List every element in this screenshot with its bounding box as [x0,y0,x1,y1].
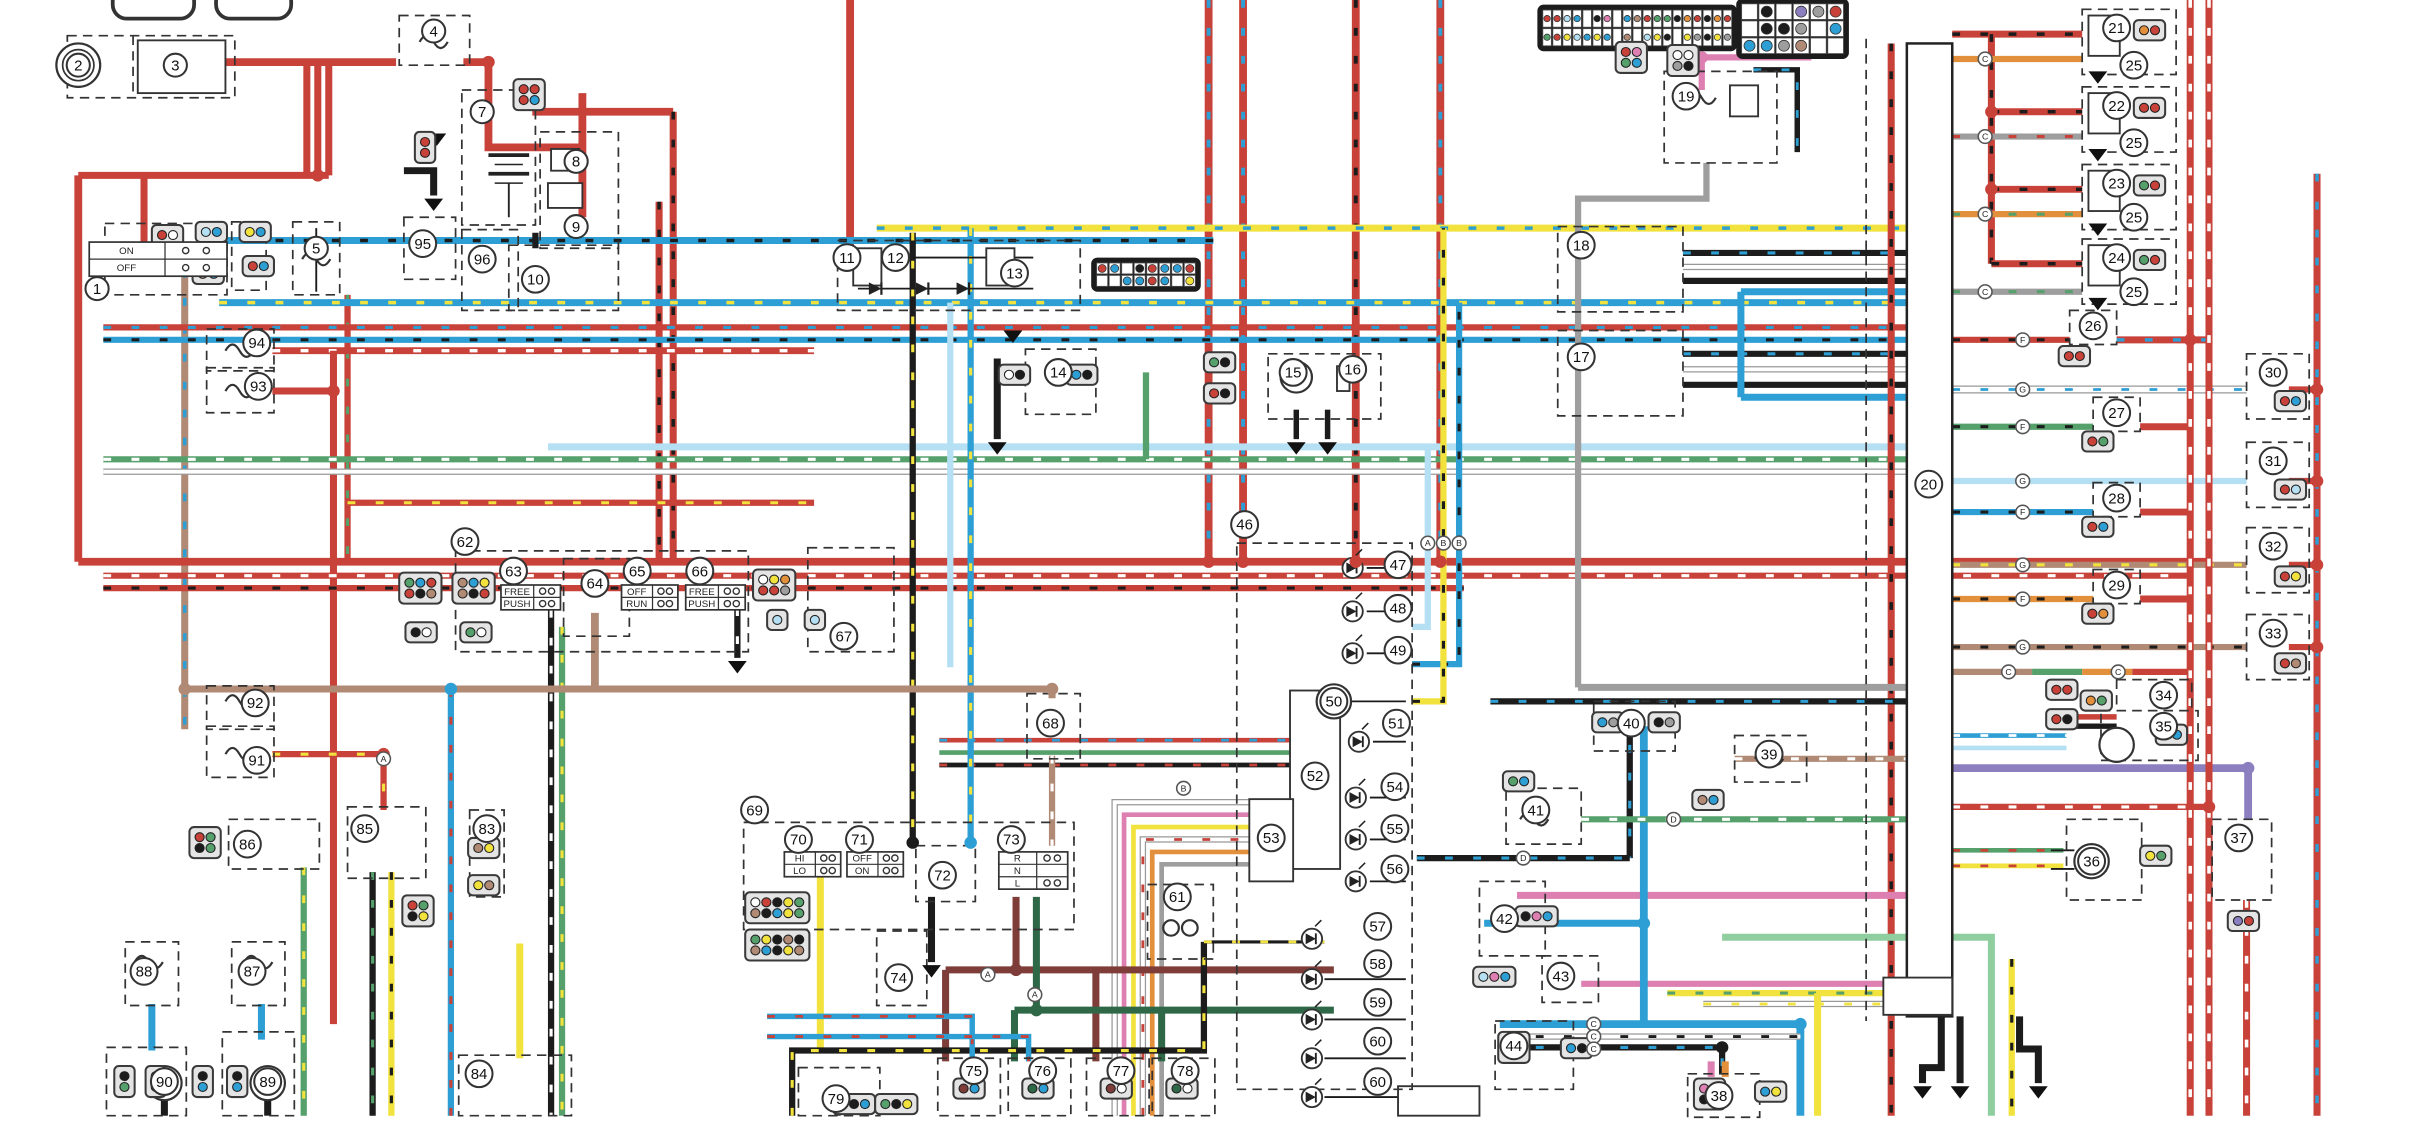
switch-label: FREE [504,587,530,598]
connector [243,256,274,276]
connector-pin [2280,397,2289,406]
component-label: 24 [2108,250,2125,267]
component-label: 16 [1344,362,1361,379]
switch-label: RUN [626,599,647,610]
connector-pin [881,1100,890,1109]
wire-marker-letter: C [1982,209,1988,219]
connector-pin [519,85,528,94]
connector-pin [1684,61,1693,70]
connector [514,79,545,110]
component-label: 67 [835,629,852,646]
junction-dot [1237,556,1250,568]
pin [1594,34,1600,40]
component-label: 84 [471,1066,488,1083]
component-label: 48 [1390,601,1407,618]
connector-pin [1083,370,1092,379]
connector-pin [206,844,215,853]
pin-cell [1097,275,1108,286]
connector-pin [466,628,475,637]
connector-pin [2139,103,2148,112]
connector [999,365,1030,385]
wire-marker-letter: F [2020,422,2025,432]
connector-pin [773,935,782,944]
connector [2134,250,2165,270]
component-label: 44 [1506,1038,1523,1055]
connector-pin [416,589,425,598]
component-label: 60 [1369,1034,1386,1051]
component-label: 62 [457,534,474,551]
junction-dot [2311,641,2324,653]
connector-pin [198,1082,207,1091]
pin [1564,34,1570,40]
connector-pin [195,844,204,853]
wire-marker-letter: D [1670,814,1676,824]
connector-pin [784,935,793,944]
connector-pin [1210,358,1219,367]
connector-pin [2291,485,2300,494]
switch-label: OFF [627,587,646,598]
pin-cell [1583,10,1591,27]
pin [1554,34,1560,40]
pin [1574,15,1580,21]
connector-pin [2088,522,2097,531]
connector-pin [427,589,436,598]
pin [1624,34,1630,40]
junction-dot [2242,762,2255,774]
switch-label: PUSH [688,599,715,610]
wire-marker-letter: C [2005,667,2011,677]
connector-pin [860,1100,869,1109]
pin [1654,34,1660,40]
connector-pin [1072,370,1081,379]
pin [1724,34,1730,40]
pin [1644,34,1650,40]
connector-pin [770,586,779,595]
switch-label: LO [793,866,806,877]
connector-pin [1221,358,1230,367]
component-label: 2 [74,58,82,75]
component-label: 95 [414,236,431,253]
component-label: 3 [171,58,179,75]
connector-pin [2075,352,2084,361]
connector-pin [1665,718,1674,727]
connector [2275,653,2306,673]
connector-pin [198,1072,207,1081]
connector-pin [2233,916,2242,925]
connector-pin [1543,912,1552,921]
component-label: 79 [828,1091,845,1108]
pin [1761,23,1772,34]
wire-marker-letter: A [985,970,991,980]
wire-marker-letter: A [1032,990,1038,1000]
connector [745,892,809,923]
component-label: 42 [1496,911,1513,928]
pin [1813,6,1824,17]
connector-pin [2139,26,2148,35]
wire-marker-letter: C [1982,287,1988,297]
wire-marker-letter: B [1441,538,1447,548]
connector-pin [751,946,760,955]
component-label: 36 [2083,854,2100,871]
pin-cell [1673,29,1681,46]
connector-pin [2291,659,2300,668]
connector [2275,479,2306,499]
pin [1624,15,1630,21]
component-label: 96 [474,251,491,268]
connector [399,573,441,604]
connector-pin [1709,795,1718,804]
connector [745,929,809,960]
component-label: 33 [2265,625,2282,642]
connector-pin [1028,1084,1037,1093]
connector [196,222,227,242]
component-label: 25 [2125,58,2142,75]
connector-pin [519,96,528,105]
pin [1674,15,1680,21]
connector [1616,42,1647,73]
wire-marker-letter: G [2019,476,2026,486]
connector-pin [751,898,760,907]
pin [1111,264,1119,272]
connector-pin [892,1100,901,1109]
wire-marker-letter: D [1520,853,1526,863]
connector-pin [2146,851,2155,860]
switch-label: ON [855,866,870,877]
component-label: 30 [2265,365,2282,382]
component-label: 29 [2108,577,2125,594]
component-label: 75 [965,1063,982,1080]
connector-pin [784,946,793,955]
component-label: 13 [1006,265,1023,282]
junction-dot [906,836,919,848]
connector-pin [795,909,804,918]
connector [1755,1082,1786,1102]
connector-pin [458,589,467,598]
connector [2082,604,2113,624]
connector [2059,346,2090,366]
wire-marker-letter: C [1591,1044,1597,1054]
connector-pin [1501,972,1510,981]
connector-pin [762,935,771,944]
connector-pin [849,1100,858,1109]
component-label: 5 [312,241,320,258]
component-label: 69 [746,802,763,819]
component-label: 37 [2230,830,2247,847]
wire-marker-letter: F [2020,335,2025,345]
connector-pin [2099,522,2108,531]
pin-cell [1109,275,1120,286]
connector [240,222,271,242]
junction-dot [1794,1018,1807,1030]
switch-label: FREE [689,587,715,598]
gauge-icon [1163,920,1179,936]
connector-pin [474,881,483,890]
component-label: 55 [1387,821,1404,838]
connector-pin [1654,718,1663,727]
component-label: 77 [1113,1063,1130,1080]
pin [1148,264,1156,272]
junction-dot [1716,1041,1729,1053]
gauge-icon [1182,920,1198,936]
switch-label: OFF [117,263,136,274]
junction-dot [2311,559,2324,571]
connector-pin [422,628,431,637]
unit-box [1398,1086,1479,1115]
connector-pin [530,85,539,94]
component-label: 7 [478,104,486,121]
component-label: 35 [2155,719,2172,736]
component-label: 53 [1263,830,1280,847]
component-label: 14 [1050,365,1067,382]
switch-label: PUSH [504,599,531,610]
pin [1604,15,1610,21]
connector-pin [416,578,425,587]
connector [114,1066,134,1097]
component-label: 25 [2125,135,2142,152]
connector-pin [1566,1044,1575,1053]
junction-dot [1030,1004,1043,1016]
junction-dot [1350,556,1363,568]
pin [1574,34,1580,40]
connector-pin [1761,1087,1770,1096]
connector-pin [2086,696,2095,705]
connector-pin [959,1084,968,1093]
unit-box [1730,85,1758,116]
pin [1830,23,1841,34]
connector [1692,790,1723,810]
connector-pin [795,946,804,955]
connector-pin [1039,1084,1048,1093]
pin [1664,15,1670,21]
pin [1694,34,1700,40]
connector [2140,846,2171,866]
wire-marker-letter: A [381,754,387,764]
junction-dot [178,683,191,695]
component-label: 70 [790,832,807,849]
connector-pin [1521,912,1530,921]
pin-cell [1828,38,1844,54]
ecu-box [1907,43,1952,1016]
connector-pin [120,1072,129,1081]
wire-marker-letter: G [2019,642,2026,652]
pin [1724,15,1730,21]
connector [460,622,491,642]
component-label: 39 [1761,746,1778,763]
connector-pin [770,575,779,584]
component-label: 50 [1325,694,1342,711]
connector-pin [1621,58,1630,67]
component-label: 88 [136,964,153,981]
component-label: 74 [890,970,907,987]
connector-pin [1015,370,1024,379]
connector [2134,98,2165,118]
connector-pin [1532,912,1541,921]
pin-cell [1742,4,1758,20]
component-label: 65 [629,563,646,580]
connector-pin [1684,51,1693,60]
junction-dot [445,683,458,695]
component-label: 57 [1369,919,1386,936]
pin [1704,15,1710,21]
junction-dot [964,836,977,848]
pin [1644,15,1650,21]
connector-pin [427,578,436,587]
connector-pin [485,881,494,890]
unit-box [548,183,582,208]
component-label: 59 [1369,995,1386,1012]
connector-pin [421,137,430,146]
connector [468,875,499,895]
component-label: 92 [247,695,264,712]
component-label: 8 [572,154,580,171]
pin [1654,15,1660,21]
connector-pin [784,909,793,918]
connector-pin [1117,1084,1126,1093]
connector-pin [2063,715,2072,724]
component-label: 63 [505,563,522,580]
connector-pin [2099,609,2108,618]
connector-pin [781,586,790,595]
pin [1098,264,1106,272]
component-label: 93 [250,379,267,396]
connector-pin [1004,370,1013,379]
connector-pin [474,844,483,853]
component-label: 32 [2265,539,2282,556]
component-label: 64 [587,576,604,593]
wire-marker-letter: F [2020,507,2025,517]
connector-pin [1106,1084,1115,1093]
component-label: 17 [1573,349,1590,366]
junction-dot [1985,106,1998,118]
wire-marker-letter: C [1591,1032,1597,1042]
connector-pin [1673,61,1682,70]
connector-pin [212,227,221,236]
connector-pin [469,589,478,598]
connector-pin [773,946,782,955]
component-label: 25 [2125,210,2142,227]
connector-pin [1183,1084,1192,1093]
pin [1778,23,1789,34]
component-label: 25 [2125,284,2142,301]
pin [1136,264,1144,272]
connector-pin [2157,851,2166,860]
pin-cell [1742,21,1758,37]
wire-marker-letter: F [2020,594,2025,604]
connector-pin [405,589,414,598]
connector-pin [1621,47,1630,56]
connector-pin [419,912,428,921]
connector-pin [2150,26,2159,35]
wire-marker-letter: C [1982,132,1988,142]
junction-dot [1046,683,1059,695]
component-label: 54 [1387,779,1404,796]
component-label: 31 [2265,453,2282,470]
connector [1503,771,1534,791]
pin [1796,40,1807,51]
pin [1173,264,1181,272]
connector-pin [256,227,265,236]
connector-pin [773,898,782,907]
connector-pin [970,1084,979,1093]
connector [2275,566,2306,586]
connector-pin [759,586,768,595]
connector-pin [2150,181,2159,190]
connector-pin [480,589,489,598]
pin [1564,15,1570,21]
pin [1544,34,1550,40]
pin-cell [1122,263,1133,274]
connector [2082,517,2113,537]
junction-dot [2203,801,2216,813]
connector [2275,391,2306,411]
junction-dot [1010,964,1023,976]
connector-pin [477,628,486,637]
pin [1796,23,1807,34]
pin [1694,15,1700,21]
component-label: 73 [1003,832,1020,849]
junction-dot [1434,556,1447,568]
connector [2081,691,2112,711]
junction-dot [327,385,340,397]
pin [1634,15,1640,21]
connector-pin [762,898,771,907]
component-label: 76 [1034,1063,1051,1080]
component-label: 47 [1390,557,1407,574]
connector-pin [530,96,539,105]
pin [1594,15,1600,21]
component-label: 94 [248,335,265,352]
connector-pin [773,615,782,624]
pin [1554,15,1560,21]
connector-pin [2291,572,2300,581]
connector-pin [762,946,771,955]
component-label: 68 [1042,715,1059,732]
pin [1123,277,1131,285]
component-label: 83 [479,821,496,838]
component-label: 71 [851,832,868,849]
pin [1604,34,1610,40]
wire-marker-letter: B [1181,783,1187,793]
component-label: 12 [887,250,904,267]
pin-cell [1811,21,1827,37]
connector-pin [411,628,420,637]
connector-pin [2280,572,2289,581]
connector-pin [1221,389,1230,398]
connector-pin [259,262,268,271]
pin [1664,34,1670,40]
component-label: 18 [1573,238,1590,255]
wire-marker-letter: C [1591,1019,1597,1029]
pin [1796,6,1807,17]
connector-pin [1698,795,1707,804]
component-label: 22 [2108,98,2125,115]
connector [1649,712,1680,732]
component-label: 72 [934,868,951,885]
pin [1186,264,1194,272]
pin [1136,277,1144,285]
pin [1161,264,1169,272]
connector-pin [773,909,782,918]
connector-pin [2139,181,2148,190]
component-label: 38 [1711,1088,1728,1105]
diagram-canvas: ONOFFFREEPUSHOFFRUNFREEPUSHHILOOFFONRNLA… [0,0,2436,1125]
pin [1830,6,1841,17]
connector-pin [2052,685,2061,694]
wire-marker-letter: B [1456,538,1462,548]
gauge-icon [2099,728,2133,762]
component-label: 21 [2108,20,2125,37]
connector-pin [810,615,819,624]
